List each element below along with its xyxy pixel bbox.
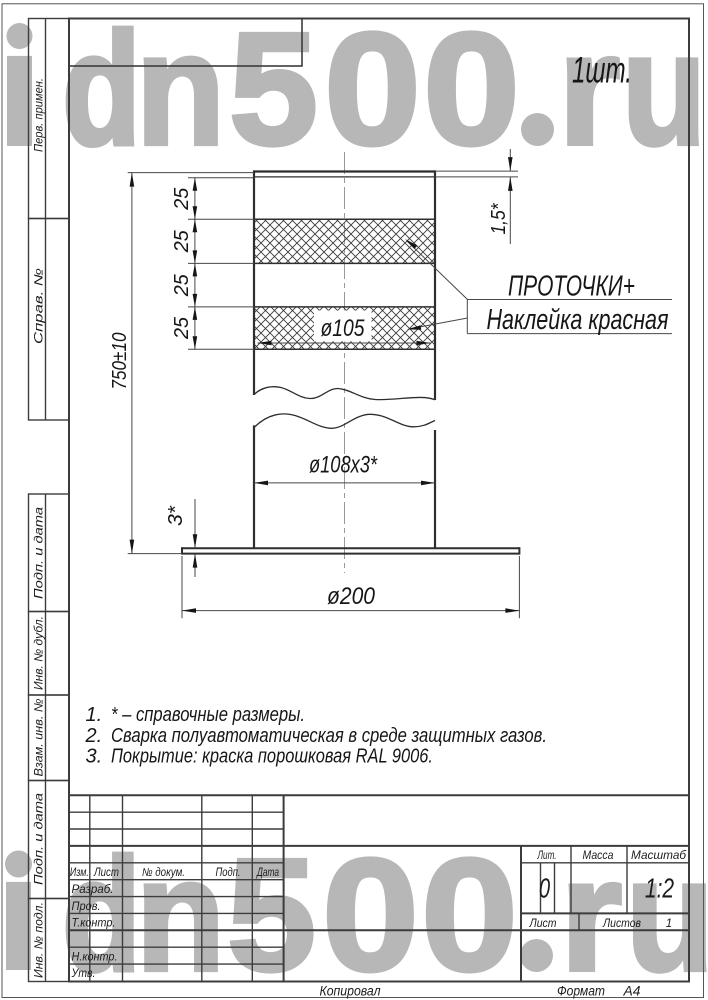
svg-text:Покрытие: краска порошковая RA: Покрытие: краска порошковая RAL 9006. (111, 746, 433, 768)
svg-text:ø108x3*: ø108x3* (309, 452, 378, 479)
svg-text:Масштаб: Масштаб (631, 850, 687, 862)
svg-text:Инв. № дубл.: Инв. № дубл. (32, 616, 46, 690)
svg-text:1.: 1. (86, 704, 103, 726)
svg-text:0: 0 (539, 873, 551, 904)
svg-text:d: d (62, 0, 140, 178)
svg-text:ø200: ø200 (327, 583, 376, 610)
svg-text:0: 0 (322, 827, 419, 1000)
svg-text:Лист: Лист (93, 867, 119, 879)
svg-text:0: 0 (421, 827, 518, 1000)
svg-text:Масса: Масса (583, 850, 614, 862)
svg-text:3.: 3. (86, 746, 103, 768)
svg-text:Утв.: Утв. (71, 968, 96, 980)
svg-text:Лист: Лист (529, 918, 557, 930)
svg-text:25: 25 (170, 187, 193, 211)
svg-text:0: 0 (324, 1, 421, 179)
svg-text:Формат: Формат (557, 984, 605, 999)
svg-text:25: 25 (170, 274, 193, 298)
svg-text:3*: 3* (164, 505, 187, 526)
svg-text:* – справочные размеры.: * – справочные размеры. (111, 704, 305, 726)
svg-text:1: 1 (666, 918, 672, 930)
svg-text:Наклейка красная: Наклейка красная (487, 304, 669, 336)
svg-text:0: 0 (423, 1, 520, 179)
svg-text:25: 25 (170, 316, 193, 340)
svg-text:Перв. примен.: Перв. примен. (32, 78, 46, 152)
svg-text:1:2: 1:2 (645, 874, 674, 905)
svg-text:5: 5 (227, 825, 316, 1000)
svg-text:Копировал: Копировал (320, 984, 381, 999)
svg-text:Сварка полуавтоматическая в ср: Сварка полуавтоматическая в среде защитн… (111, 725, 547, 747)
svg-text:n: n (136, 1, 225, 179)
svg-text:2.: 2. (85, 725, 103, 747)
svg-text:Подп. и дата: Подп. и дата (32, 793, 46, 885)
svg-text:Разраб.: Разраб. (72, 884, 114, 896)
svg-text:25: 25 (170, 230, 193, 254)
svg-text:Инв. № подл.: Инв. № подл. (32, 902, 46, 978)
svg-text:Пров.: Пров. (72, 901, 101, 913)
svg-text:Подп.: Подп. (216, 867, 241, 879)
svg-text:Справ. №: Справ. № (32, 268, 46, 344)
svg-text:ø105: ø105 (321, 315, 366, 342)
svg-text:Лит.: Лит. (537, 850, 557, 862)
svg-text:Изм.: Изм. (70, 867, 89, 879)
svg-text:ПРОТОЧКИ+: ПРОТОЧКИ+ (508, 271, 635, 303)
svg-text:Взам. инв. №: Взам. инв. № (32, 699, 46, 777)
svg-text:750±10: 750±10 (108, 332, 131, 389)
svg-text:5: 5 (229, 0, 318, 178)
svg-text:Подп. и дата: Подп. и дата (32, 507, 46, 599)
svg-text:u: u (622, 0, 706, 178)
svg-text:№ докум.: № докум. (142, 867, 185, 879)
svg-text:1,5*: 1,5* (487, 203, 510, 235)
svg-text:Листов: Листов (602, 918, 641, 930)
svg-text:Дата: Дата (256, 867, 279, 879)
svg-text:1шт.: 1шт. (572, 50, 632, 91)
svg-text:А4: А4 (622, 984, 640, 999)
svg-text:Т.контр.: Т.контр. (72, 918, 116, 930)
svg-text:Н.контр.: Н.контр. (72, 951, 118, 963)
